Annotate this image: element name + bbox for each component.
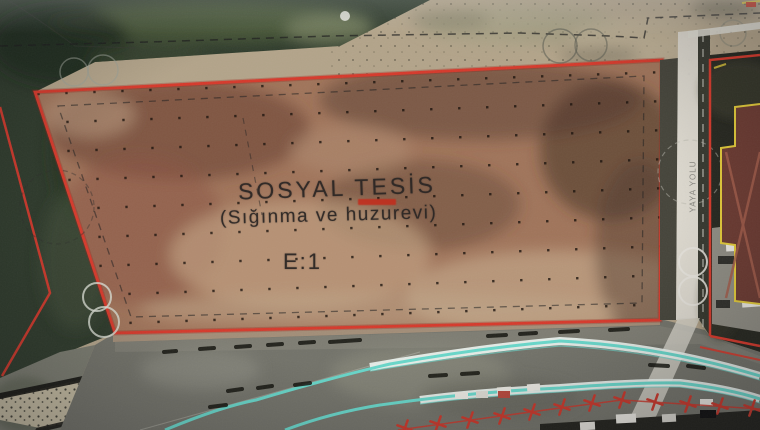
- pedestrian-way-label: YAYA YOLU: [689, 144, 698, 230]
- floor-area-ratio-label: E:1: [283, 249, 322, 275]
- red-annotation-mark: [358, 199, 396, 205]
- aerial-zoning-map[interactable]: SOSYAL TESİS (Sığınma ve huzurevi) E:1 Y…: [0, 0, 760, 430]
